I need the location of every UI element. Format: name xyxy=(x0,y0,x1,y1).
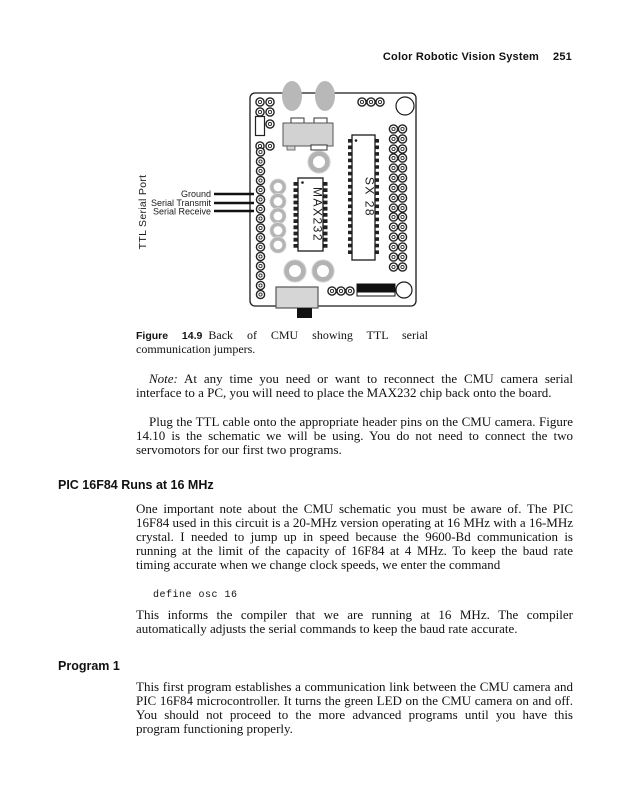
figure-cmu-board-diagram: MAX232 SX 28 xyxy=(120,74,430,328)
note-label: Note: xyxy=(149,371,178,386)
running-title: Color Robotic Vision System xyxy=(383,51,539,63)
power-switch xyxy=(276,287,318,308)
pic16f84-paragraph: One important note about the CMU schemat… xyxy=(136,502,573,572)
plug-paragraph: Plug the TTL cable onto the appropriate … xyxy=(136,415,573,457)
figure-caption: Figure 14.9Back of CMU showing TTL seria… xyxy=(136,329,428,355)
sx28-label: SX 28 xyxy=(363,177,377,217)
pin1-dot xyxy=(301,181,304,184)
note-paragraph: Note: At any time you need or want to re… xyxy=(136,372,573,400)
via-ring-top xyxy=(308,151,330,173)
section-heading-pic16f84: PIC 16F84 Runs at 16 MHz xyxy=(58,478,214,492)
jumper-callout-lines xyxy=(214,194,254,211)
max232-chip: MAX232 xyxy=(296,178,326,251)
power-switch-lever xyxy=(297,308,312,318)
pin1-dot xyxy=(355,139,358,142)
note-text: At any time you need or want to reconnec… xyxy=(136,371,573,400)
program1-paragraph: This first program establishes a communi… xyxy=(136,680,573,736)
section-heading-program1: Program 1 xyxy=(58,659,120,673)
ttl-serial-port-label: TTL Serial Port xyxy=(137,175,149,250)
sx28-chip: SX 28 xyxy=(350,135,377,260)
smd-component xyxy=(357,284,395,293)
mounting-hole-bottom xyxy=(396,282,412,298)
serial-receive-label: Serial Receive xyxy=(153,207,211,217)
power-connector xyxy=(283,118,333,150)
via-rings-column xyxy=(270,179,286,253)
mounting-hole-top xyxy=(396,97,414,115)
code-define-osc: define osc 16 xyxy=(153,590,238,601)
running-header: Color Robotic Vision System251 xyxy=(383,51,572,63)
book-page: Color Robotic Vision System251 xyxy=(0,0,637,800)
max232-label: MAX232 xyxy=(311,187,325,242)
compiler-paragraph: This informs the compiler that we are ru… xyxy=(136,608,573,636)
figure-number: Figure 14.9 xyxy=(136,330,208,342)
page-number: 251 xyxy=(553,51,572,63)
